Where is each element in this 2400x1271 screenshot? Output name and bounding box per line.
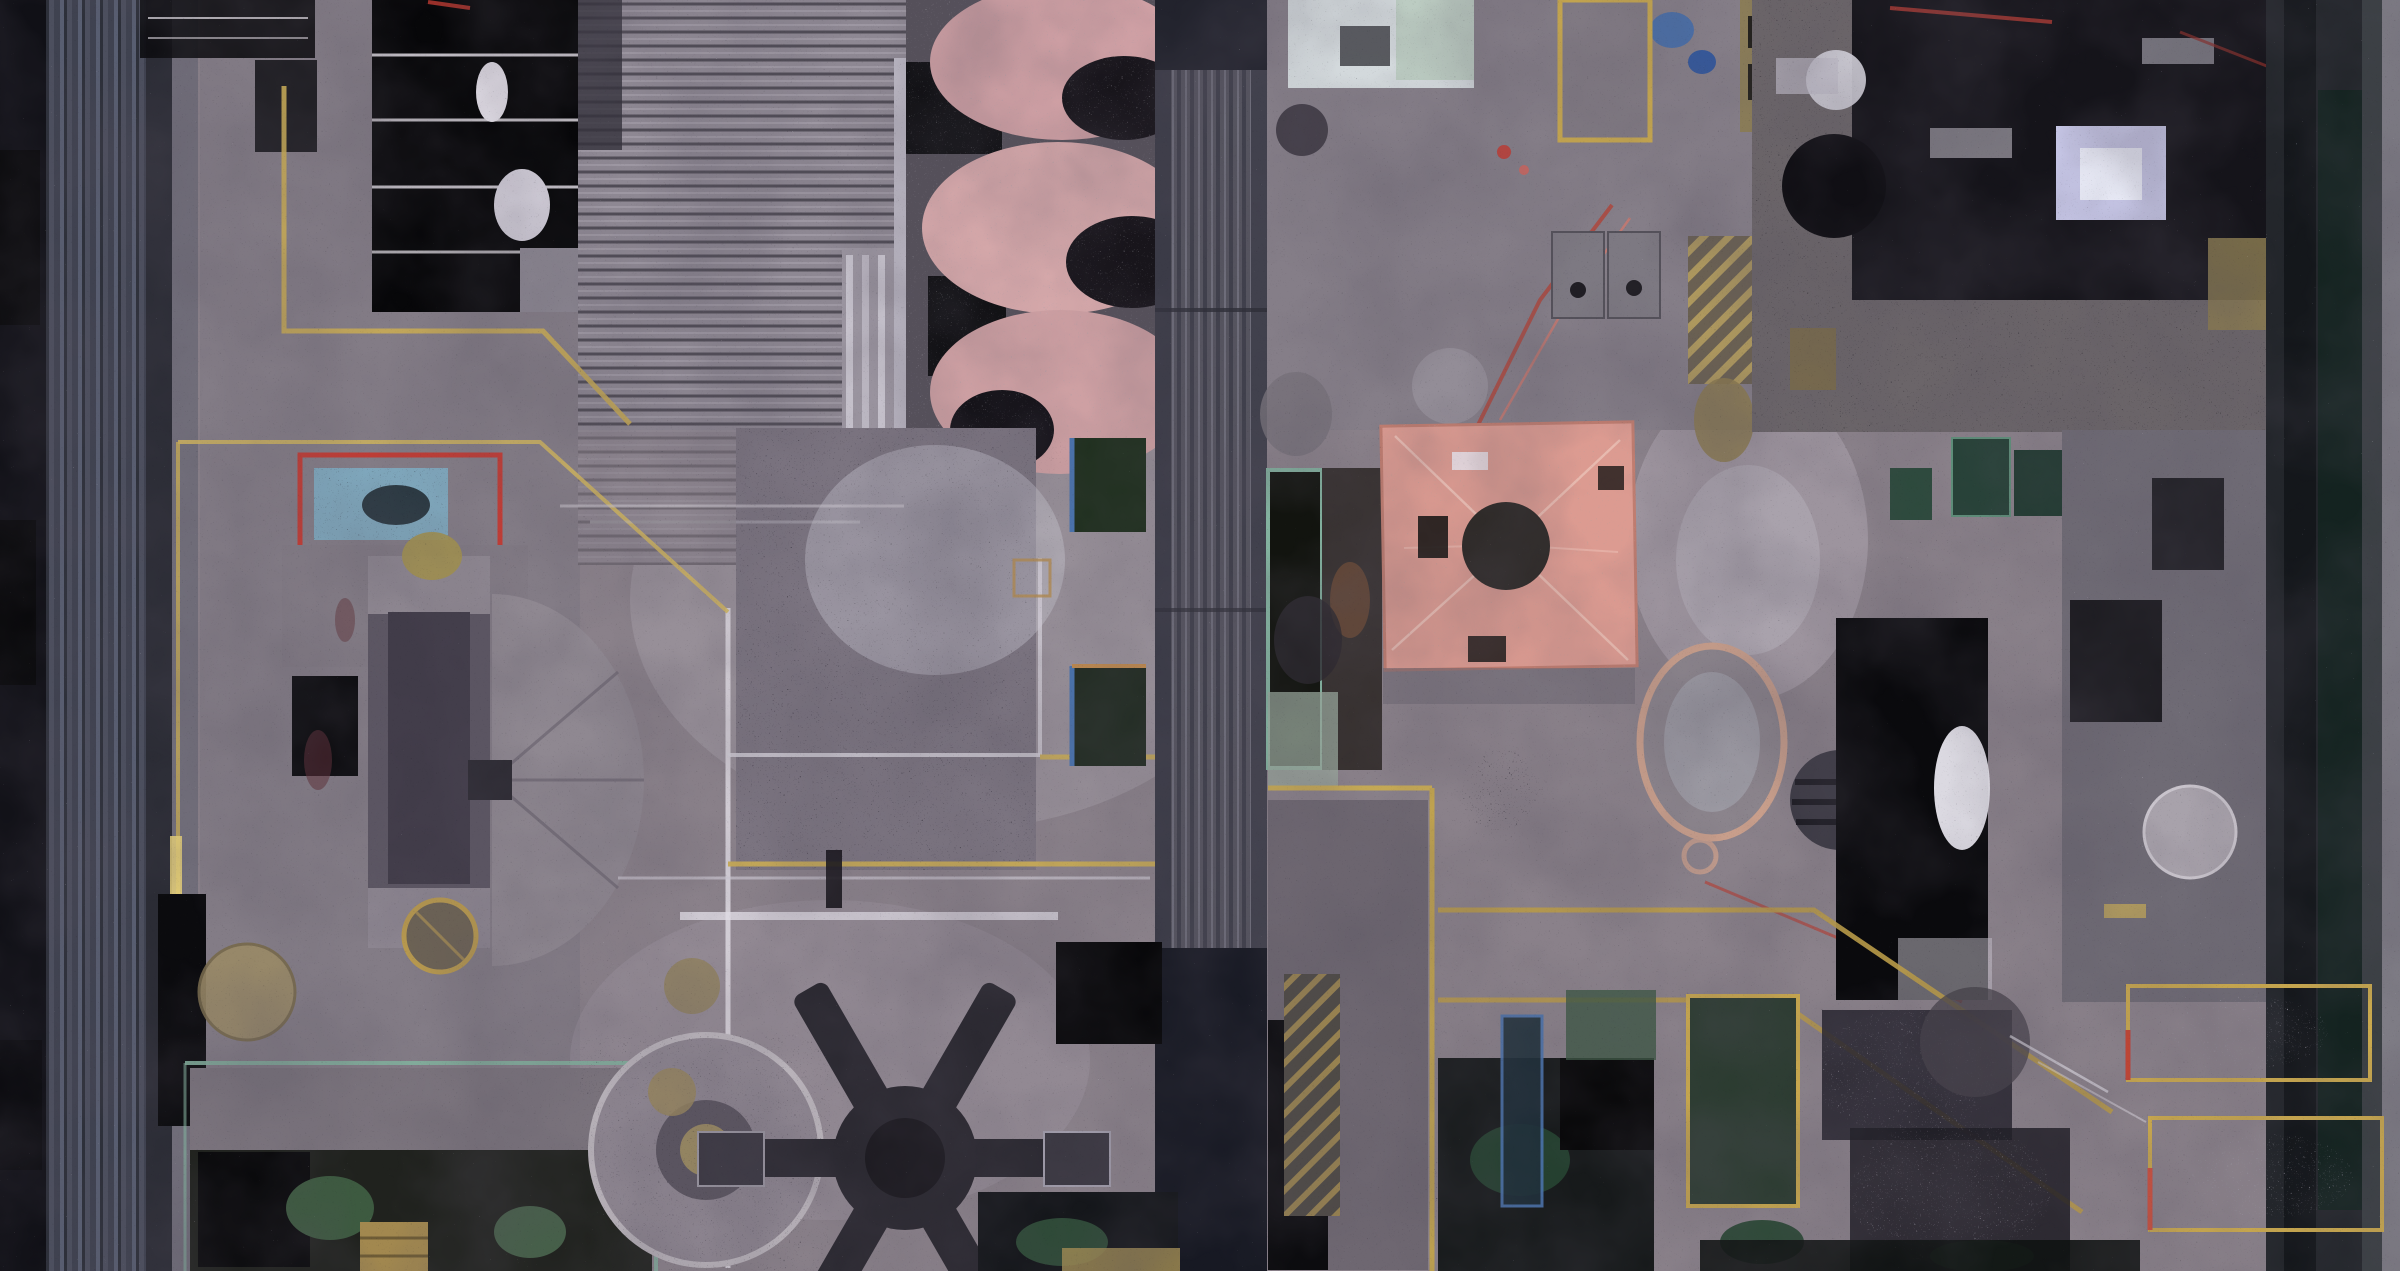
pointcloud-scene-svg [0,0,2400,1271]
pointcloud-orthoview [0,0,2400,1271]
global-blotch [0,0,2400,1271]
